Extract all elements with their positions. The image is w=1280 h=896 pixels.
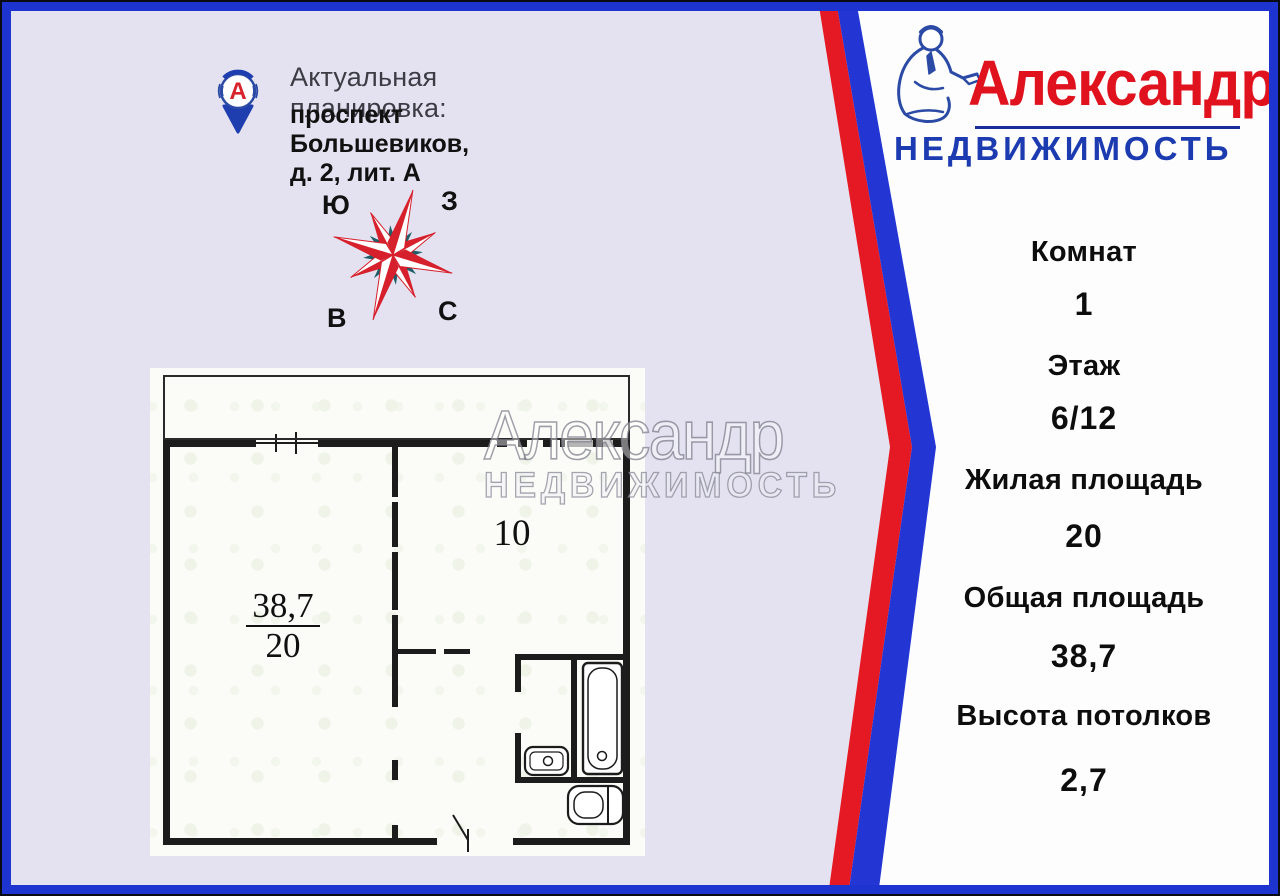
room1-area-label: 38,7 20: [228, 588, 338, 664]
detail-value-total-area: 38,7: [938, 638, 1230, 675]
header-address: проспект Большевиков, д. 2, лит. А: [290, 101, 469, 188]
detail-label-total-area: Общая площадь: [938, 582, 1230, 615]
compass-label-north: С: [438, 296, 458, 327]
logo-underline: [975, 126, 1240, 129]
room1-living-area: 20: [228, 627, 338, 664]
detail-value-living-area: 20: [938, 518, 1230, 555]
detail-label-ceiling-height: Высота потолков: [938, 700, 1230, 733]
location-pin-icon: А: [212, 64, 264, 136]
logo-subtitle: НЕДВИЖИМОСТЬ: [894, 130, 1233, 168]
floor-plan: 38,7 20 10: [150, 368, 645, 856]
detail-label-living-area: Жилая площадь: [938, 464, 1230, 497]
compass-label-west: З: [441, 186, 458, 217]
detail-value-floor: 6/12: [938, 400, 1230, 437]
floor-plan-drawing: [150, 368, 645, 856]
logo-name: Александр: [968, 46, 1275, 120]
room2-area-label: 10: [480, 512, 544, 555]
real-estate-flyer: А Актуальная планировка: проспект Больше…: [0, 0, 1280, 896]
detail-value-rooms: 1: [938, 286, 1230, 323]
detail-value-ceiling-height: 2,7: [938, 762, 1230, 799]
room1-total-area: 38,7: [246, 588, 319, 627]
compass-label-south: Ю: [322, 190, 350, 221]
detail-label-floor: Этаж: [938, 350, 1230, 383]
detail-label-rooms: Комнат: [938, 236, 1230, 269]
pin-letter: А: [229, 78, 246, 105]
compass-label-east: В: [327, 303, 347, 334]
